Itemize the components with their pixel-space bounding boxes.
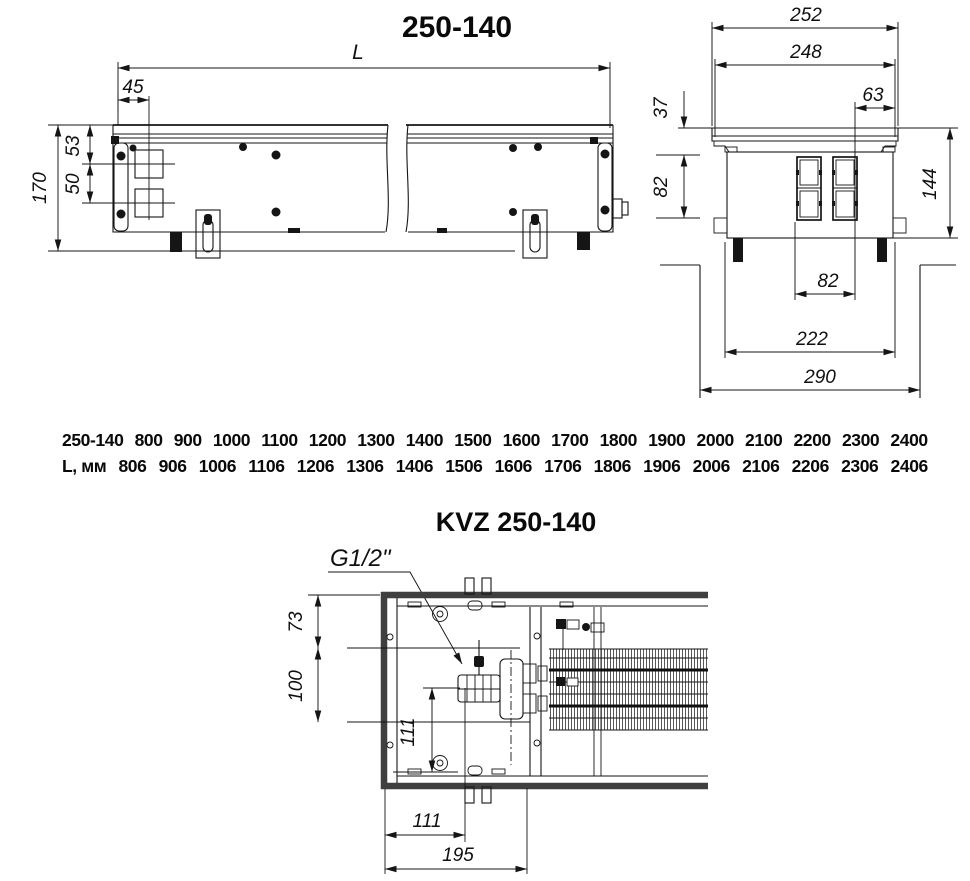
size-cell: 2106 — [742, 453, 779, 479]
dim-label-53: 53 — [63, 135, 84, 157]
leader-line — [328, 572, 462, 664]
heat-exchanger-fins — [549, 649, 708, 730]
size-cell: 250-140 — [62, 427, 123, 453]
size-cell: 1606 — [495, 453, 532, 479]
size-cell: 1600 — [503, 427, 540, 453]
size-cell: 1000 — [213, 427, 250, 453]
valve-assembly — [458, 640, 547, 765]
size-cell: 1406 — [396, 453, 433, 479]
size-cell: L, мм — [62, 453, 106, 479]
pipe-socket-group-right — [832, 157, 858, 220]
dim-label-248: 248 — [789, 42, 822, 63]
size-cell: 2306 — [841, 453, 878, 479]
size-cell: 1506 — [445, 453, 482, 479]
pipe-socket-group-left — [796, 157, 822, 220]
screw-icon — [433, 607, 448, 622]
size-cell: 1200 — [309, 427, 346, 453]
dim-label-252: 252 — [789, 5, 822, 26]
dim-label-195: 195 — [442, 845, 474, 866]
size-cell: 1806 — [594, 453, 631, 479]
size-table: 250-140800900100011001200130014001500160… — [62, 427, 928, 479]
plan-view-drawing: KVZ 250-140 G1/2" — [286, 507, 708, 874]
size-cell: 800 — [135, 427, 163, 453]
size-cell: 1700 — [551, 427, 588, 453]
screw-icon — [433, 756, 448, 771]
dim-label-63: 63 — [862, 85, 884, 106]
size-cell: 1306 — [346, 453, 383, 479]
size-cell: 2400 — [890, 427, 927, 453]
size-cell: 2000 — [697, 427, 734, 453]
dim-label-82-bottom: 82 — [817, 271, 839, 292]
dim-label-100: 100 — [286, 670, 307, 702]
dim-label-37: 37 — [651, 96, 672, 119]
size-cell: 2200 — [793, 427, 830, 453]
size-cell: 1300 — [357, 427, 394, 453]
size-cell: 2006 — [693, 453, 730, 479]
size-cell: 2100 — [745, 427, 782, 453]
dim-label-45: 45 — [122, 77, 144, 98]
dim-label-111-vertical: 111 — [398, 718, 419, 747]
side-view-title: 250-140 — [402, 11, 512, 44]
plan-view-title: KVZ 250-140 — [436, 507, 597, 537]
size-cell: 900 — [174, 427, 202, 453]
technical-drawing-page: 250-140 — [0, 0, 970, 881]
size-cell: 2406 — [891, 453, 928, 479]
size-cell: 1206 — [297, 453, 334, 479]
size-cell: 1100 — [261, 427, 297, 453]
thread-size-label: G1/2" — [330, 545, 392, 572]
dim-label-222: 222 — [795, 329, 828, 350]
size-cell: 906 — [159, 453, 187, 479]
size-cell: 1800 — [600, 427, 637, 453]
dim-label-290: 290 — [803, 367, 836, 388]
dim-label-82-left: 82 — [651, 176, 672, 198]
size-cell: 1906 — [643, 453, 680, 479]
dim-label-170: 170 — [30, 172, 51, 204]
size-cell: 2300 — [842, 427, 879, 453]
size-cell: 1006 — [199, 453, 236, 479]
dim-label-50: 50 — [63, 173, 84, 195]
size-cell: 2206 — [792, 453, 829, 479]
size-cell: 1900 — [648, 427, 685, 453]
size-cell: 806 — [118, 453, 146, 479]
dim-label-111-horizontal: 111 — [413, 811, 442, 832]
dim-label-73: 73 — [286, 611, 307, 633]
size-cell: 1106 — [248, 453, 284, 479]
size-cell: 1706 — [544, 453, 581, 479]
size-row-lengths: L, мм80690610061106120613061406150616061… — [62, 453, 928, 479]
dim-label-L: L — [352, 41, 364, 64]
size-cell: 1500 — [454, 427, 491, 453]
dim-label-144: 144 — [920, 168, 941, 200]
side-view-drawing: 250-140 — [30, 11, 628, 258]
cross-section-drawing: 252 248 63 37 82 144 82 222 290 — [651, 5, 958, 398]
size-row-models: 250-140800900100011001200130014001500160… — [62, 427, 928, 453]
size-cell: 1400 — [406, 427, 443, 453]
